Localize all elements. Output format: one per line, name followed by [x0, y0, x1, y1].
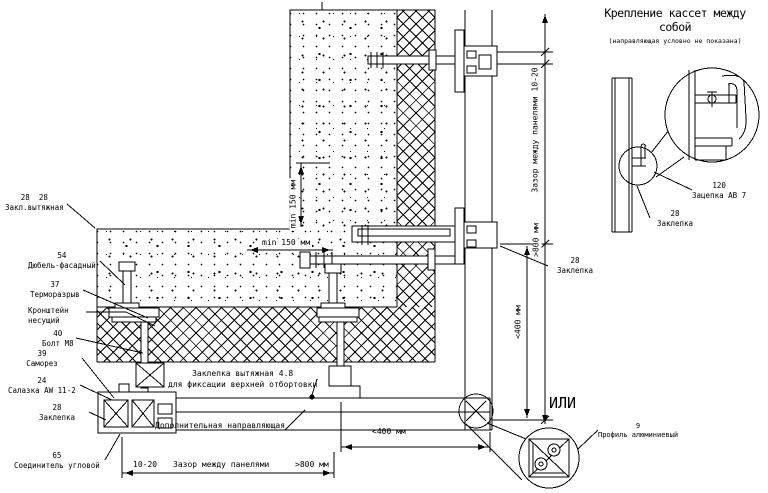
- callout-label: Дополнительная направляющая: [155, 420, 285, 431]
- callout-slide: 24 Салазка AW 11-2: [8, 376, 76, 395]
- dim-800-vertical: >800 мм: [533, 221, 542, 259]
- callout-corner-connector: 65 Соединитель угловой: [14, 451, 100, 470]
- callout-label: Салазка AW 11-2: [8, 385, 76, 395]
- callout-number: 65: [14, 451, 100, 460]
- callout-extra-guide: Дополнительная направляющая: [155, 420, 285, 431]
- top-bracket: [368, 30, 497, 92]
- anchor-right: [317, 264, 360, 398]
- callout-dowel: 54 Дюбель-фасадный: [28, 251, 96, 270]
- callout-label: Саморез: [2, 358, 82, 368]
- callout-label: Закл.вытяжная: [5, 202, 64, 212]
- drawing-linework: [0, 0, 768, 493]
- callout-thermal-break: 37 Терморазрыв: [30, 280, 80, 299]
- callout-blind-rivet: Заклепка вытяжная 4.8 для фиксации верхн…: [168, 368, 317, 389]
- callout-number: 37: [30, 280, 80, 289]
- callout-label: Заклепка: [25, 412, 89, 422]
- callout-bolt: 40 Болт М8: [42, 329, 74, 348]
- callout-number: 28: [650, 209, 700, 218]
- callout-number: 24: [8, 376, 76, 385]
- callout-label: Дюбель-фасадный: [28, 260, 96, 270]
- callout-rivet-left: 28 Заклепка: [25, 403, 89, 422]
- detail-top-right: [612, 68, 759, 232]
- callout-number: 28 28: [5, 193, 64, 202]
- callout-screw: 39 Саморез: [2, 349, 82, 368]
- dim-bottom-label: Зазор между панелями: [173, 461, 269, 470]
- dim-gap-vertical: Зазор между панелями 10-20: [532, 65, 541, 194]
- callout-hook: 120 Зацепка АВ 7: [692, 181, 746, 200]
- callout-label: Соединитель угловой: [14, 460, 100, 470]
- drawing-canvas: Крепление кассет между собой (направляющ…: [0, 0, 768, 493]
- dim-bottom-gap: 10-20: [133, 461, 157, 470]
- callout-label: Заклепка: [548, 265, 602, 275]
- callout-number: 28: [25, 403, 89, 412]
- callout-rivet-pair: 28 28 Закл.вытяжная: [5, 193, 64, 212]
- dim-bottom-800: >800 мм: [295, 461, 329, 470]
- callout-number: 120: [692, 181, 746, 190]
- callout-rivet-detail: 28 Заклепка: [650, 209, 700, 228]
- callout-number: 9: [598, 422, 678, 430]
- callout-label: Профиль алюминиевый: [598, 430, 678, 439]
- or-label: ИЛИ: [549, 394, 576, 412]
- callout-label: Заклепка: [650, 218, 700, 228]
- callout-rivet-right: 28 Заклепка: [548, 256, 602, 275]
- dim-400-vertical: <400 мм: [515, 303, 524, 341]
- callout-number: 28: [548, 256, 602, 265]
- callout-label: несущий: [28, 315, 69, 325]
- callout-label: Кронштейн: [28, 305, 69, 315]
- drawing-title: Крепление кассет между собой: [586, 6, 764, 34]
- drawing-subtitle: (направляющая условно не показана): [586, 37, 764, 45]
- callout-alu-profile: 9 Профиль алюминиевый: [598, 422, 678, 440]
- callout-label: Зацепка АВ 7: [692, 190, 746, 200]
- callout-number: 54: [28, 251, 96, 260]
- middle-bracket: [300, 208, 497, 270]
- title-block: Крепление кассет между собой (направляющ…: [586, 6, 764, 45]
- dim-400-horizontal: <400 мм: [372, 428, 406, 437]
- callout-label: Заклепка вытяжная 4.8: [168, 368, 317, 379]
- callout-bracket: Кронштейн несущий: [28, 305, 69, 325]
- callout-label: Терморазрыв: [30, 289, 80, 299]
- anchor-left: [109, 262, 164, 398]
- callout-number: 40: [42, 329, 74, 338]
- callout-label: Болт М8: [42, 338, 74, 348]
- dim-min150-horizontal: min 150 мм: [260, 239, 312, 248]
- dim-min150-vertical: min 150 мм: [290, 178, 299, 230]
- callout-number: 39: [2, 349, 82, 358]
- callout-label: для фиксации верхней отбортовки: [168, 379, 317, 390]
